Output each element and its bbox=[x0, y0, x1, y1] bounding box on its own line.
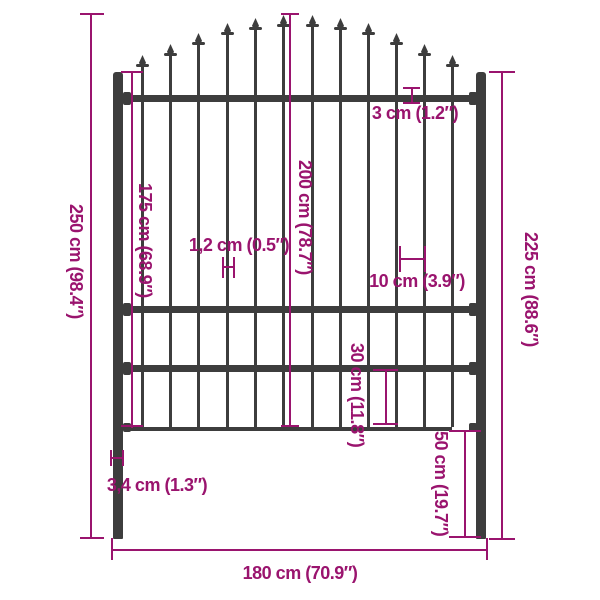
dim-total-width-label: 180 cm (70.9″) bbox=[243, 564, 358, 582]
dimension-tick bbox=[486, 538, 488, 560]
dim-total-width: 180 cm (70.9″) bbox=[0, 0, 600, 600]
diagram-canvas: 250 cm (98.4″) 175 cm (68.9″) 200 cm (78… bbox=[0, 0, 600, 600]
dimension-line bbox=[112, 549, 488, 551]
dimension-tick bbox=[111, 538, 113, 560]
